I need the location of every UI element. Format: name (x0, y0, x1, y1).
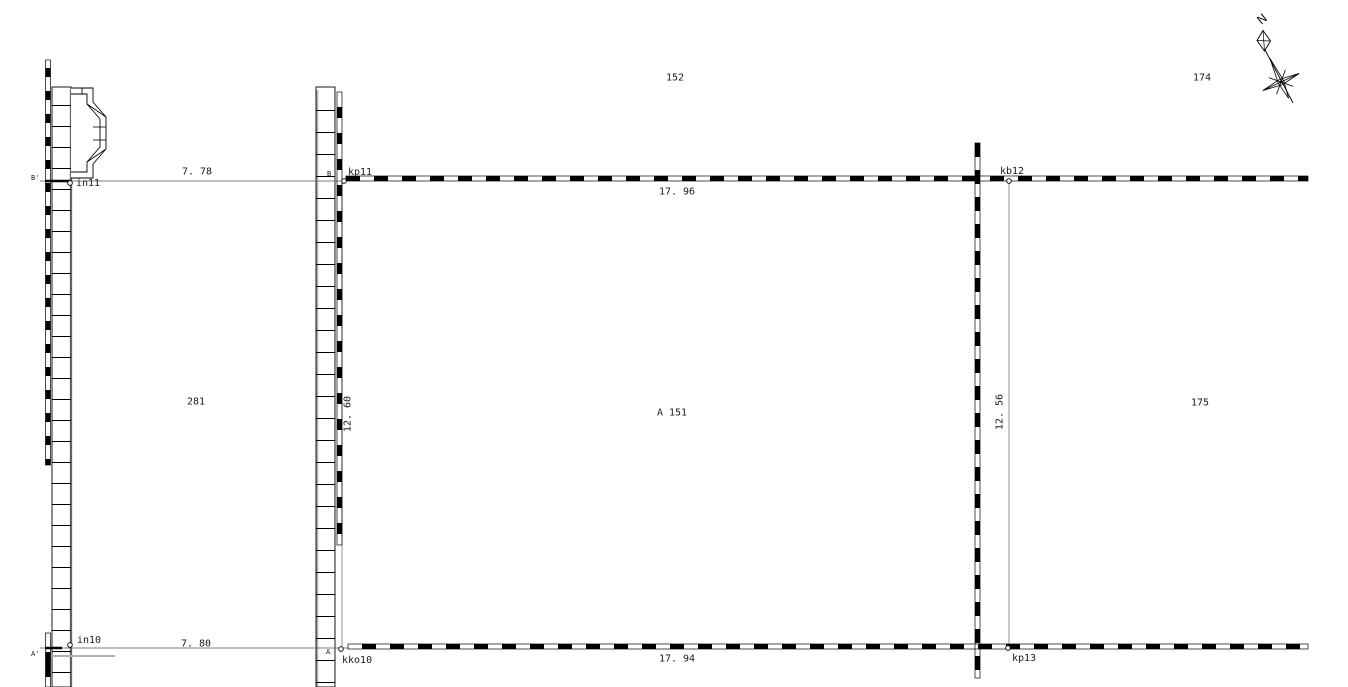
section-label-b: B (327, 170, 331, 178)
boundary-line-top (346, 176, 1308, 181)
parcel-label-152: 152 (666, 73, 684, 84)
section-label-a-prime: A' (31, 650, 39, 658)
marker-kp11 (342, 179, 347, 184)
marker-kb12 (1007, 179, 1012, 184)
boundary-line-bottom (348, 644, 1308, 649)
stairs-symbol-middle (316, 87, 335, 687)
survey-point-markers (68, 179, 1012, 652)
boundary-line-left-vertical (46, 60, 51, 465)
dimension-label-12-56: 12. 56 (995, 394, 1006, 430)
parcel-label-175: 175 (1191, 398, 1209, 409)
survey-plot-canvas: 152 174 281 A 151 175 7. 78 17. 96 12. 6… (0, 0, 1348, 687)
boundary-line-middle-vertical (337, 92, 342, 545)
parcel-label-174: 174 (1193, 73, 1211, 84)
marker-kko10 (339, 647, 344, 652)
section-label-a: A (326, 648, 330, 656)
parcel-label-281: 281 (187, 397, 205, 408)
dimension-label-17-96: 17. 96 (659, 187, 695, 198)
marker-kp13 (1006, 646, 1011, 651)
dimension-label-17-94: 17. 94 (659, 654, 695, 665)
north-compass-icon (1257, 31, 1299, 104)
dimension-lines (40, 181, 1009, 656)
marker-in10 (68, 643, 73, 648)
point-label-kko10: kko10 (342, 655, 372, 666)
point-label-kp11: kp11 (348, 167, 372, 178)
dimension-label-7-80: 7. 80 (181, 639, 211, 650)
boundary-line-right-vertical (975, 143, 980, 678)
stairs-symbol-left (52, 87, 106, 687)
parcel-label-a151: A 151 (657, 408, 687, 419)
section-label-b-prime: B' (31, 174, 39, 182)
marker-in11 (68, 181, 73, 186)
dimension-label-12-60: 12. 60 (343, 396, 354, 432)
point-label-kb12: kb12 (1000, 166, 1024, 177)
point-label-kp13: kp13 (1012, 653, 1036, 664)
point-label-in11: in11 (76, 178, 100, 189)
survey-plot-drawing (0, 0, 1348, 687)
dimension-label-7-78: 7. 78 (182, 167, 212, 178)
boundary-line-left-bottom-vertical (46, 633, 51, 687)
point-label-in10: in10 (77, 635, 101, 646)
